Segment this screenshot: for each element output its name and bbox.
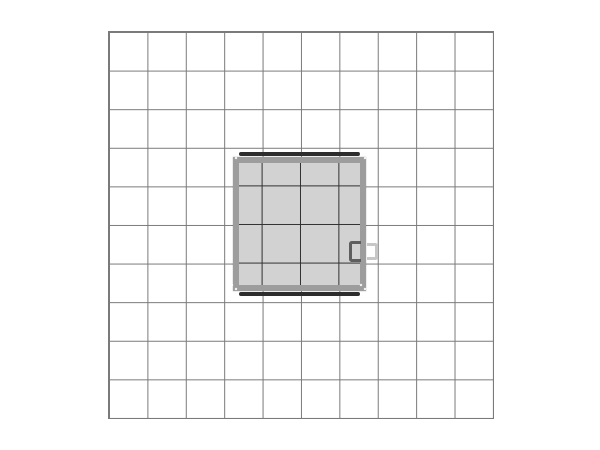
booth-interior-floor bbox=[239, 163, 360, 285]
plan-view-canvas bbox=[0, 0, 600, 450]
corner-connector-icon bbox=[230, 283, 238, 291]
corner-connector-icon bbox=[359, 152, 367, 160]
corner-connector-icon bbox=[230, 152, 238, 160]
top-wall-bar bbox=[239, 152, 360, 156]
door-handle-outer-icon bbox=[367, 243, 378, 260]
corner-connector-icon bbox=[359, 283, 367, 291]
door-handle-inner-icon bbox=[349, 241, 361, 262]
bottom-wall-bar bbox=[239, 292, 360, 296]
